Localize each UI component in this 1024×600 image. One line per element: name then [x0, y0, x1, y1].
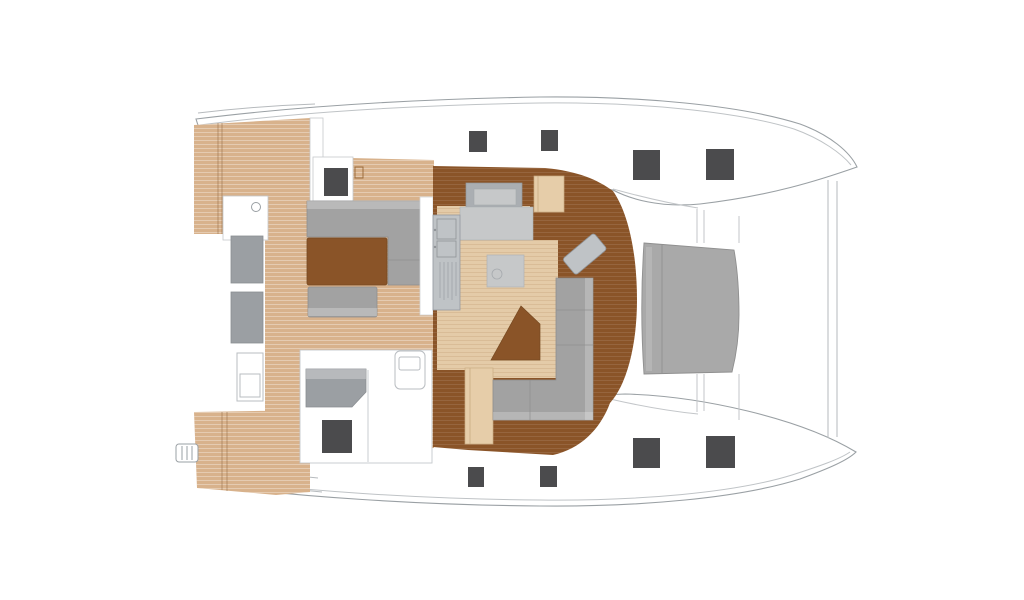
deck-hatch — [468, 467, 484, 487]
forward-crossbeam — [828, 180, 837, 438]
companionway-stairs-port — [465, 368, 493, 444]
saloon-sofa-back-bottom — [493, 412, 593, 420]
galley-counter — [460, 207, 533, 240]
deck-plan-page — [0, 0, 1024, 600]
deck-hatch — [633, 438, 660, 468]
sunpad-highlight — [646, 247, 652, 371]
aft-galley-counter-top — [474, 189, 516, 205]
helm-hatch — [322, 420, 352, 453]
cockpit-sofa-back — [307, 201, 420, 209]
cockpit-door — [420, 197, 433, 315]
aft-locker-lid — [240, 374, 260, 397]
deck-hatch — [541, 130, 558, 151]
cockpit-bench-edge — [308, 308, 377, 316]
steering-wheel — [399, 357, 420, 370]
galley-sink-unit — [433, 215, 460, 310]
companionway-stairs-starboard — [534, 176, 564, 212]
helm-seat-back — [306, 369, 366, 379]
deck-hatch-cockpit — [324, 168, 348, 196]
bow-sunpad — [642, 243, 739, 374]
deck-fitting — [252, 203, 261, 212]
transom-seat-2 — [231, 292, 263, 343]
transom-seat-1 — [231, 236, 263, 283]
deck-hatch — [706, 149, 734, 180]
aft-deck-locker — [223, 196, 268, 240]
deck-hatch — [706, 436, 735, 468]
deck-hatch — [633, 150, 660, 180]
cockpit-table — [307, 238, 387, 285]
saloon-sofa-back-right — [585, 278, 593, 420]
deck-hatch — [469, 131, 487, 152]
deck-hatch — [540, 466, 557, 487]
swim-ladder — [176, 444, 198, 462]
deck-plan-canvas — [0, 0, 1024, 600]
